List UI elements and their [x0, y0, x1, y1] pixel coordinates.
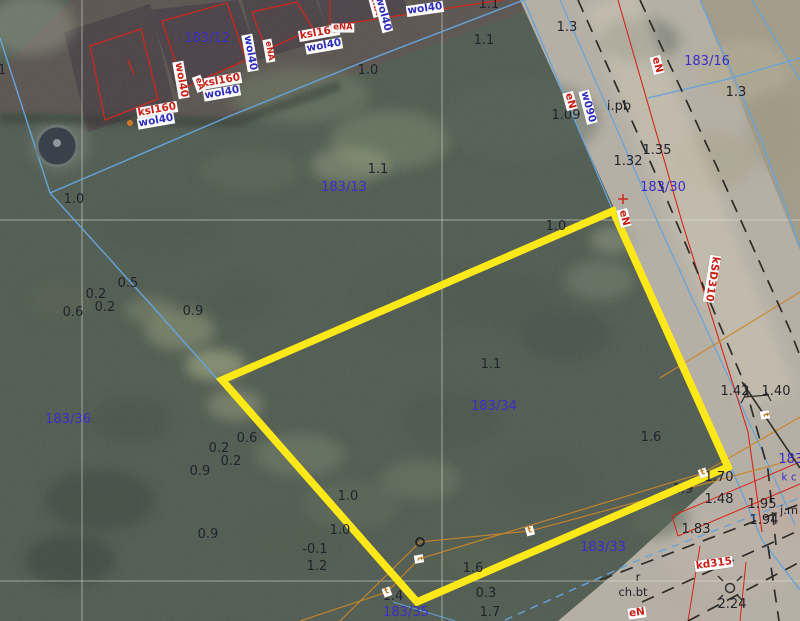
elevation-label: 0.2 — [95, 301, 116, 315]
elevation-label: 1.7 — [480, 606, 501, 620]
elevation-label: 1.94 — [750, 514, 779, 528]
utility-label: t — [414, 554, 424, 564]
elevation-label: 1.0 — [546, 220, 567, 234]
parcel-number-label: k c — [781, 472, 796, 483]
utility-label: eNA — [331, 24, 354, 33]
utility-label: eN — [649, 55, 664, 75]
utility-label: wol40 — [172, 61, 189, 99]
elevation-label: 1.1 — [474, 34, 495, 48]
elevation-label: 1.6 — [463, 562, 484, 576]
parcel-number-label: 183/36 — [45, 413, 91, 427]
elevation-label: 1.35 — [643, 144, 672, 158]
map-label-layer: 11.01.11.11.31.09i.pb1.321.351.31.11.01.… — [0, 0, 800, 621]
elevation-label: i.pb — [607, 100, 631, 114]
utility-label: w090 — [578, 89, 597, 124]
elevation-label: 0.9 — [190, 465, 211, 479]
elevation-label: 1 — [0, 64, 6, 78]
elevation-label: 1.83 — [682, 523, 711, 537]
utility-label: eNA — [263, 39, 276, 64]
parcel-number-label: 183/35 — [383, 606, 429, 620]
elevation-label: 0.9 — [183, 305, 204, 319]
utility-label: wol40 — [406, 1, 444, 17]
elevation-label: 1.6 — [641, 431, 662, 445]
elevation-label: 1.70 — [705, 471, 734, 485]
elevation-label: j.m — [780, 504, 798, 516]
elevation-label: 1.0 — [330, 524, 351, 538]
elevation-label: 0.9 — [198, 528, 219, 542]
utility-label: eN — [627, 606, 646, 619]
elevation-label: 1.0 — [64, 193, 85, 207]
elevation-label: 1.1 — [479, 0, 500, 12]
parcel-number-label: 183/16 — [684, 55, 730, 69]
elevation-label: 1.32 — [614, 155, 643, 169]
elevation-label: 1.48 — [705, 493, 734, 507]
parcel-number-label: 183/34 — [471, 400, 517, 414]
elevation-label: 0.6 — [63, 306, 84, 320]
elevation-label: 1.3 — [726, 86, 747, 100]
map-canvas[interactable]: 1.9 11.01.11.11.31.09i.pb1.321.351.31.11… — [0, 0, 800, 621]
elevation-label: 1.2 — [307, 560, 328, 574]
utility-label: kSD310 — [703, 255, 721, 303]
elevation-label: 1.42 — [721, 385, 750, 399]
elevation-label: 0.3 — [476, 587, 497, 601]
elevation-label: 1.95 — [748, 498, 777, 512]
elevation-label: -0.1 — [302, 543, 327, 557]
elevation-label: ch.bt — [618, 586, 647, 598]
parcel-number-label: 183/30 — [640, 181, 686, 195]
elevation-label: 0.6 — [237, 432, 258, 446]
elevation-label: 0.5 — [118, 277, 139, 291]
utility-label: kd315 — [694, 556, 734, 572]
utility-label: t — [760, 410, 770, 420]
elevation-label: 1.3 — [557, 21, 578, 35]
elevation-label: 1.1 — [481, 358, 502, 372]
elevation-label: 1.0 — [358, 64, 379, 78]
elevation-label: 2.24 — [718, 598, 747, 612]
utility-label: eN — [616, 208, 631, 228]
elevation-label: r — [636, 571, 641, 583]
elevation-label: 1.1 — [368, 163, 389, 177]
parcel-number-label: 183/13 — [321, 181, 367, 195]
elevation-label: 1.0 — [338, 490, 359, 504]
elevation-label: 1.40 — [762, 385, 791, 399]
elevation-label: 0.2 — [221, 455, 242, 469]
parcel-number-label: 183/12 — [184, 32, 230, 46]
utility-label: t — [525, 526, 535, 537]
utility-label: wol40 — [241, 34, 258, 72]
elevation-label: 1.09 — [552, 109, 581, 123]
parcel-number-label: 183/ — [778, 453, 800, 467]
parcel-number-label: 183/33 — [580, 541, 626, 555]
